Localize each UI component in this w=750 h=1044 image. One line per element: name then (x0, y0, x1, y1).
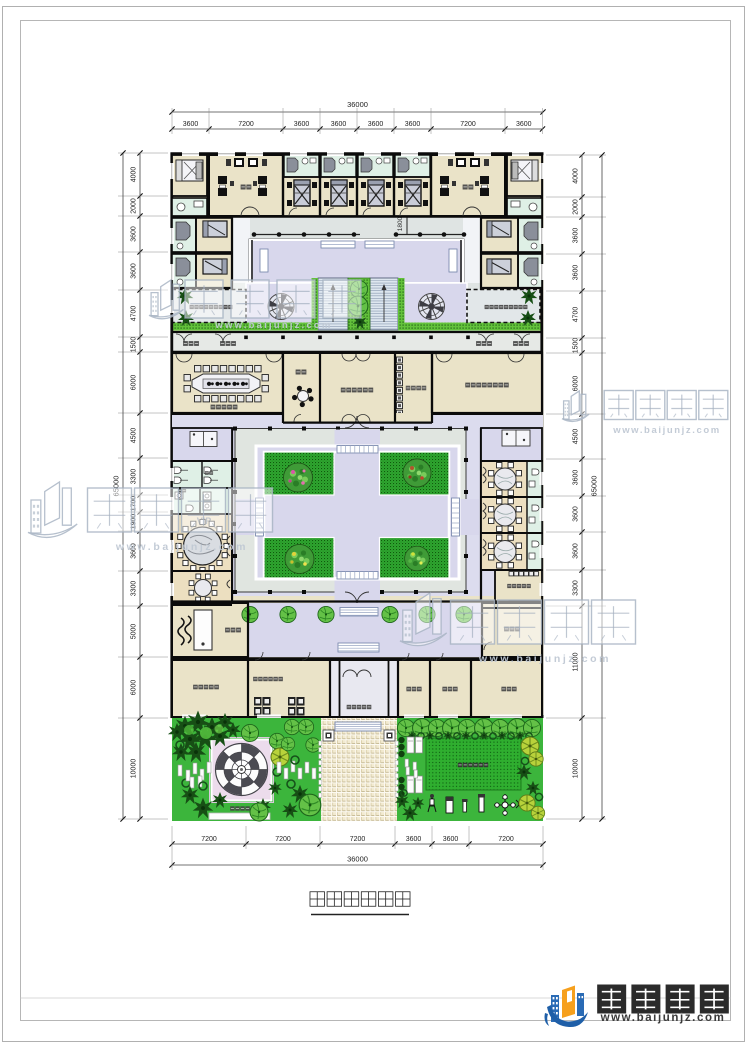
svg-text:3300: 3300 (131, 469, 138, 485)
svg-text:36000: 36000 (347, 855, 368, 864)
svg-text:3600: 3600 (573, 265, 580, 281)
svg-text:3600: 3600 (131, 226, 138, 242)
svg-text:4700: 4700 (573, 307, 580, 323)
svg-text:36000: 36000 (347, 100, 368, 109)
svg-text:7200: 7200 (275, 836, 291, 843)
svg-text:4000: 4000 (573, 168, 580, 184)
svg-text:3600: 3600 (405, 121, 421, 128)
svg-text:2000: 2000 (131, 198, 138, 214)
svg-text:3300: 3300 (573, 580, 580, 596)
svg-text:7200: 7200 (238, 121, 254, 128)
svg-text:3600: 3600 (443, 836, 459, 843)
svg-text:2000: 2000 (573, 199, 580, 215)
svg-text:7200: 7200 (498, 836, 514, 843)
svg-text:3600: 3600 (573, 470, 580, 486)
svg-text:4000: 4000 (131, 167, 138, 183)
svg-text:7200: 7200 (460, 121, 476, 128)
svg-text:3600: 3600 (516, 121, 532, 128)
svg-text:www.baijunjz.com: www.baijunjz.com (600, 1012, 726, 1024)
svg-text:3600: 3600 (131, 263, 138, 279)
svg-text:3600: 3600 (183, 121, 199, 128)
svg-text:www.baijunjz.com: www.baijunjz.com (612, 425, 721, 436)
svg-text:6000: 6000 (131, 680, 138, 696)
svg-text:1500: 1500 (131, 337, 138, 353)
svg-text:7200: 7200 (201, 836, 217, 843)
svg-text:6000: 6000 (131, 375, 138, 391)
svg-text:www.baijunjz.com: www.baijunjz.com (478, 653, 611, 665)
svg-text:5000: 5000 (131, 624, 138, 640)
svg-text:7200: 7200 (350, 836, 366, 843)
svg-text:3300: 3300 (131, 581, 138, 597)
svg-text:1800: 1800 (397, 216, 404, 231)
svg-text:1500: 1500 (573, 338, 580, 354)
svg-text:3600: 3600 (406, 836, 422, 843)
svg-text:6000: 6000 (573, 376, 580, 392)
svg-text:4500: 4500 (131, 428, 138, 444)
svg-text:10000: 10000 (131, 759, 138, 779)
svg-text:10000: 10000 (573, 759, 580, 779)
svg-text:3600: 3600 (294, 121, 310, 128)
svg-text:3600: 3600 (331, 121, 347, 128)
svg-text:www.baijunjz.com: www.baijunjz.com (115, 541, 248, 553)
svg-text:3600: 3600 (368, 121, 384, 128)
svg-text:3600: 3600 (573, 543, 580, 559)
svg-text:4700: 4700 (131, 306, 138, 322)
svg-text:www.baijunjz.com: www.baijunjz.com (214, 320, 332, 331)
svg-text:3600: 3600 (573, 506, 580, 522)
svg-text:65000: 65000 (590, 476, 599, 497)
svg-text:3600: 3600 (573, 228, 580, 244)
svg-text:4500: 4500 (573, 429, 580, 445)
